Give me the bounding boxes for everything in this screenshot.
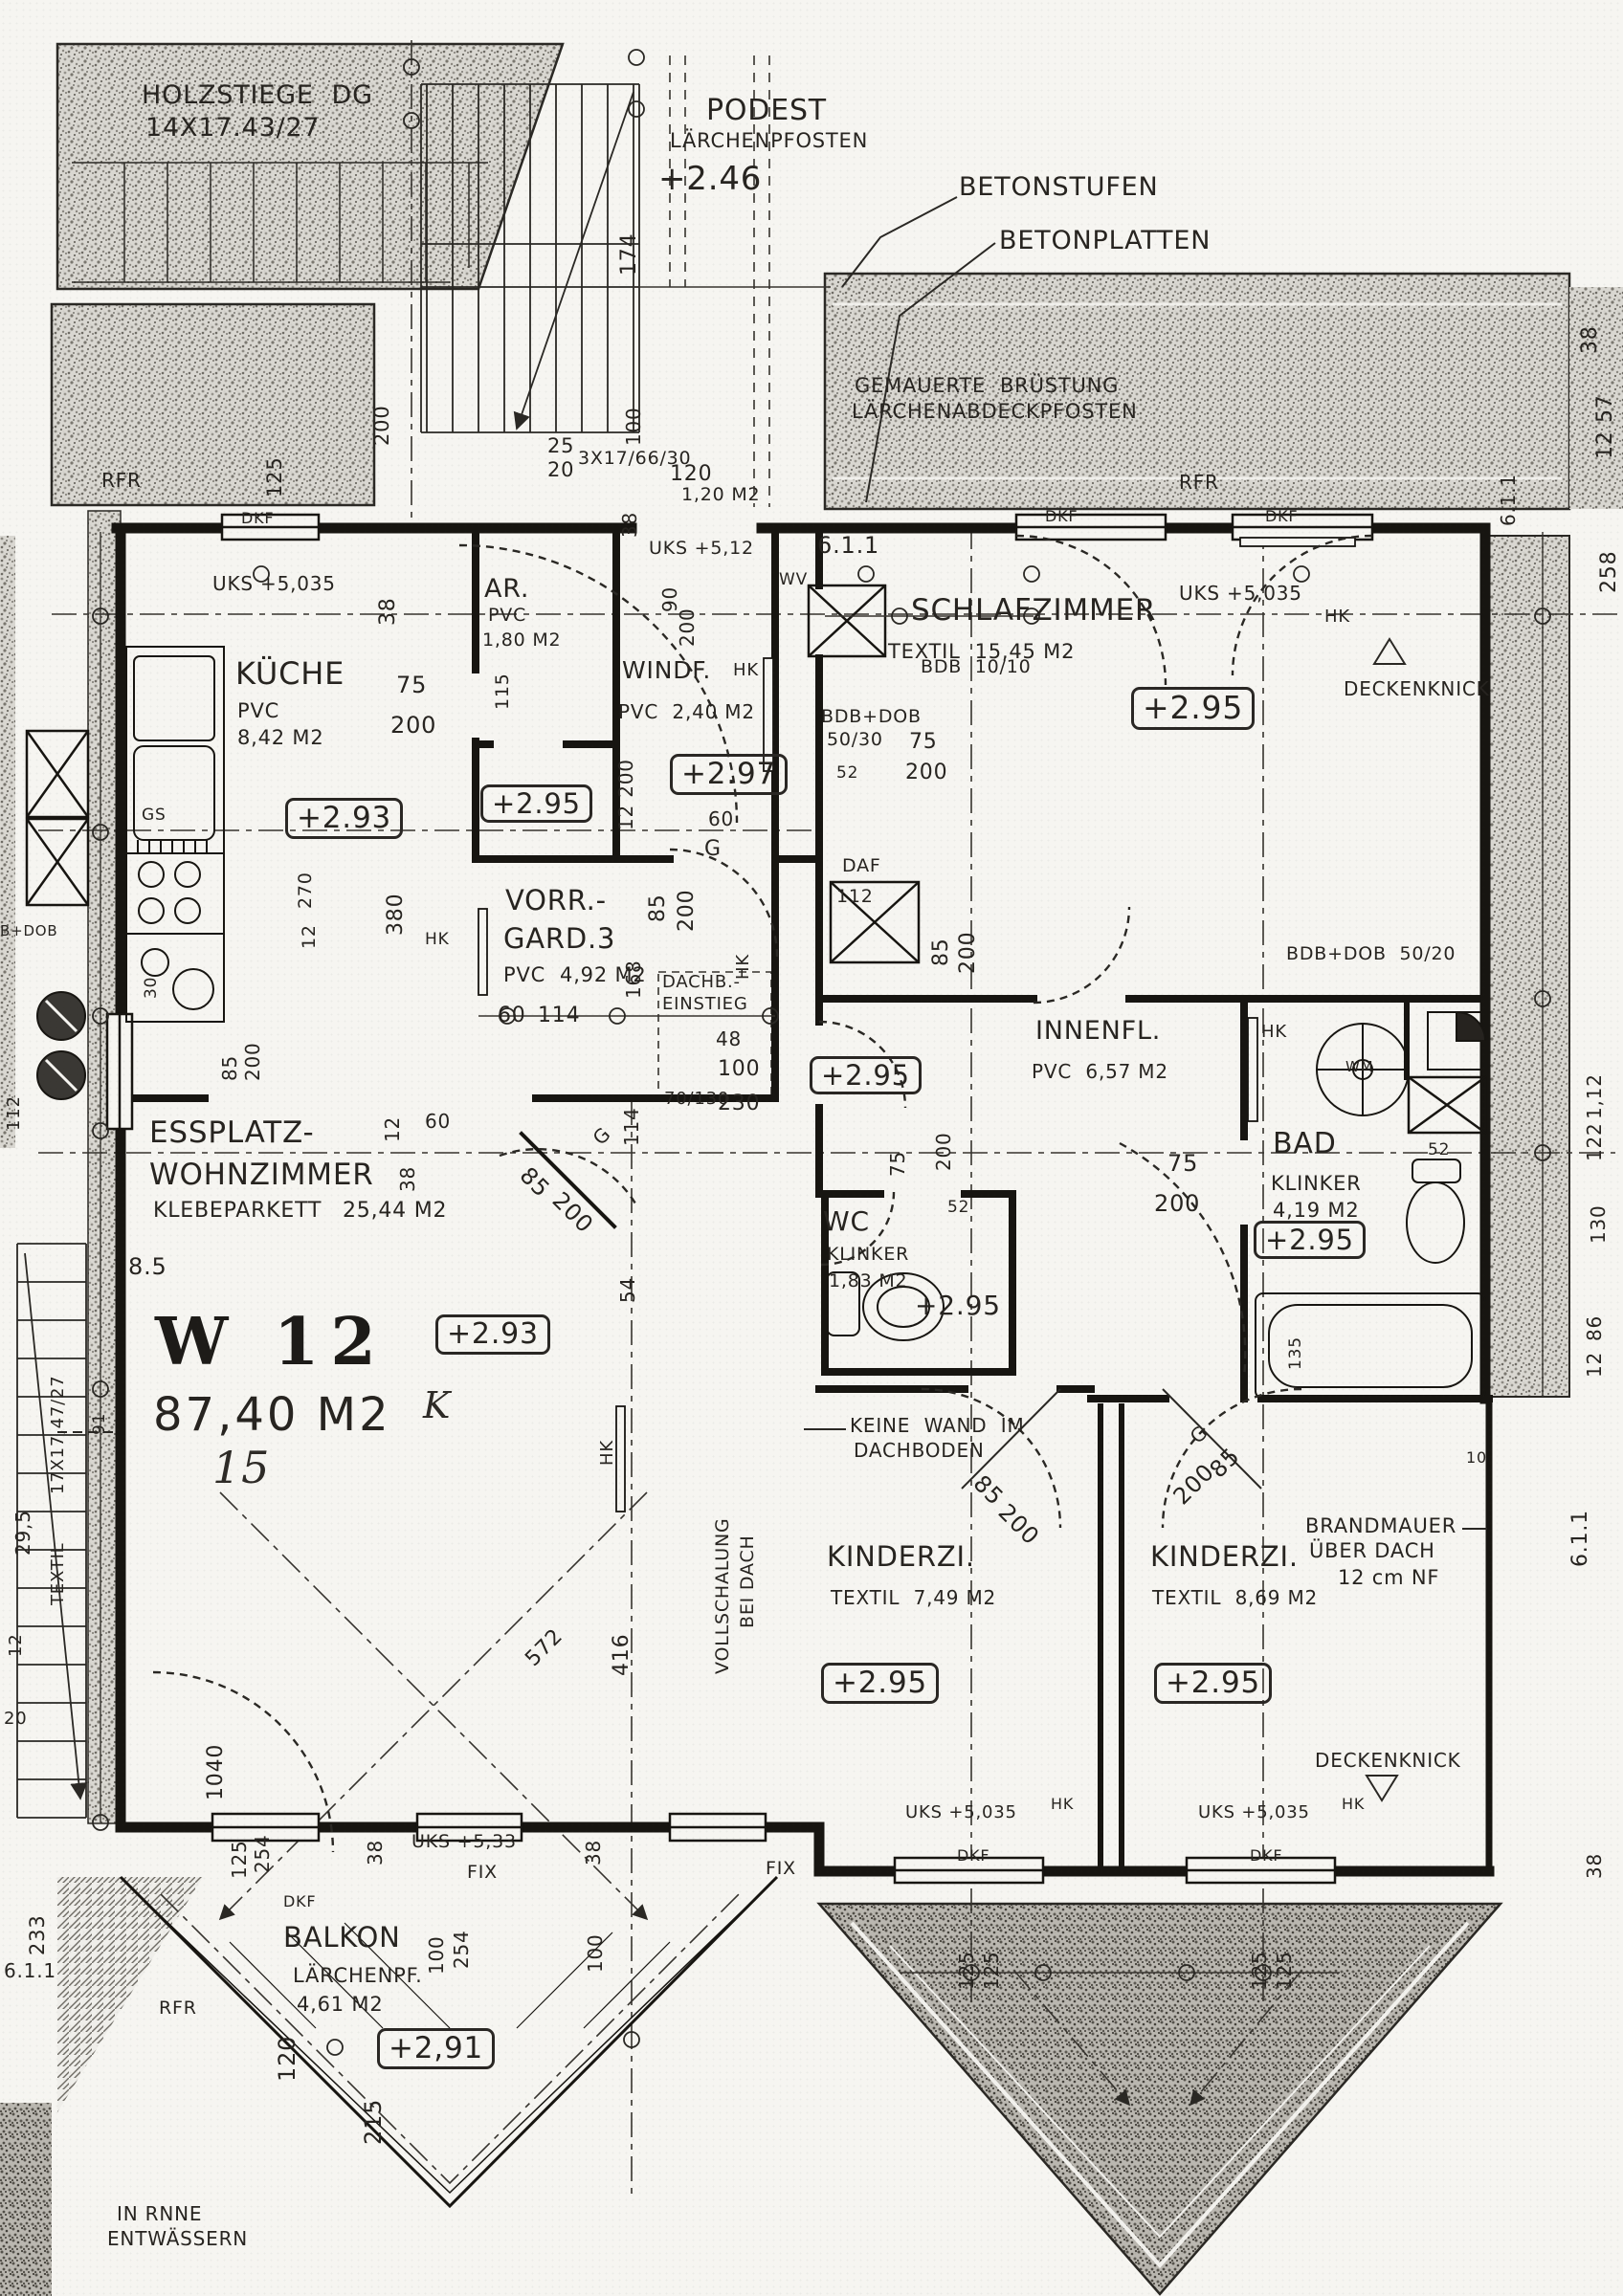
anno-r-130: 130 — [1589, 1204, 1609, 1244]
anno-door-g-200: 200 — [676, 890, 698, 932]
anno-innen-level: +2.95 — [810, 1056, 922, 1094]
anno-betonplatten: BETONPLATTEN — [999, 228, 1211, 254]
anno-dim-12-ess: 12 — [383, 1116, 403, 1142]
anno-dim-12-k: 12 — [300, 924, 320, 949]
anno-r-258: 258 — [1598, 551, 1620, 593]
anno-rinne-1: IN RNNE — [117, 2204, 202, 2224]
anno-kueche-floor: PVC — [237, 700, 279, 721]
anno-ar-floor: PVC — [488, 607, 526, 626]
anno-dim-114-e: 114 — [622, 1107, 642, 1146]
anno-keine-1: KEINE WAND IM — [850, 1416, 1025, 1436]
anno-r-112: 1,12 — [1585, 1073, 1605, 1119]
anno-podest-name: PODEST — [706, 96, 827, 126]
anno-dim-215: 215 — [362, 2099, 386, 2145]
anno-dim-25: 25 — [547, 435, 574, 456]
anno-podest-level: +2.46 — [658, 163, 762, 197]
anno-podest-material: LÄRCHENPFOSTEN — [670, 130, 868, 151]
expansion-joints — [658, 55, 771, 1098]
anno-dim-54: 54 — [618, 1277, 638, 1303]
anno-voll-1: VOLLSCHALUNG — [714, 1518, 733, 1674]
anno-wc-name: WC — [823, 1207, 870, 1235]
anno-dim-52-bad: 52 — [1428, 1142, 1450, 1159]
anno-dim-125-k1a: 125 — [957, 1951, 977, 1990]
anno-dim-380: 380 — [385, 894, 407, 936]
anno-schlaf-level: +2.95 — [1131, 687, 1255, 730]
anno-balkon-level: +2,91 — [377, 2028, 495, 2069]
anno-uks-512: UKS +5,12 — [649, 540, 754, 559]
anno-area-stair: 1,20 M2 — [681, 486, 760, 505]
radiators — [478, 538, 1355, 1512]
anno-rfr-balkon: RFR — [159, 1999, 197, 2019]
anno-wv: WV — [779, 572, 808, 589]
anno-dim-38-ess: 38 — [398, 1166, 418, 1192]
anno-uks-5035-k1: UKS +5,035 — [905, 1804, 1017, 1822]
anno-dim-125-b: 125 — [230, 1840, 250, 1879]
anno-rfr-left: RFR — [101, 471, 142, 491]
anno-holzstiege-1: HOLZSTIEGE DG — [142, 82, 373, 109]
anno-dim-38-b1: 38 — [366, 1840, 386, 1865]
anno-hk-bad: HK — [1261, 1024, 1287, 1042]
anno-dim-254-b1: 254 — [253, 1834, 273, 1873]
anno-hk-wohn: HK — [599, 1440, 617, 1466]
anno-door-kueche-75: 75 — [396, 673, 427, 697]
anno-vorr-name-2: GARD.3 — [503, 924, 615, 953]
anno-ess-area: 25,44 M2 — [343, 1200, 447, 1222]
anno-bruestung-2: LÄRCHENABDECKPFOSTEN — [852, 401, 1138, 422]
anno-unit-id: W 12 — [155, 1309, 388, 1377]
anno-dim-125-tl: 125 — [264, 457, 285, 497]
anno-bad-area: 4,19 M2 — [1273, 1200, 1360, 1221]
anno-dim-100-b2: 100 — [586, 1933, 606, 1973]
anno-r-122: 122 — [1585, 1122, 1605, 1161]
anno-holzstiege-2: 14X17.43/27 — [145, 115, 320, 142]
anno-r-38b: 38 — [1585, 1853, 1605, 1879]
anno-dim-254-b2: 254 — [452, 1930, 472, 1969]
anno-unit-area: 87,40 M2 — [153, 1391, 391, 1439]
anno-dim-52-wc: 52 — [947, 1200, 969, 1217]
anno-rfr-right: RFR — [1179, 473, 1219, 493]
anno-windf-level: +2.97 — [670, 754, 788, 795]
anno-hk-k1: HK — [1051, 1797, 1074, 1813]
anno-door-wc-200: 200 — [934, 1132, 954, 1171]
anno-dim-1040: 1040 — [205, 1744, 227, 1800]
anno-k-note: K — [423, 1387, 451, 1425]
anno-dim-85-left: 8.5 — [128, 1255, 167, 1279]
anno-door-g-85: 85 — [647, 894, 669, 922]
anno-axis-611-top: 6.1.1 — [817, 534, 879, 558]
anno-dim-112-l: 112 — [6, 1095, 24, 1131]
anno-fix-2: FIX — [766, 1860, 796, 1879]
anno-uks-kueche: UKS +5,035 — [212, 574, 336, 594]
anno-dim-20: 20 — [547, 459, 574, 480]
anno-door-bad-200: 200 — [1154, 1192, 1200, 1216]
anno-wm: WM — [1345, 1060, 1373, 1075]
anno-deckenknick-2: DECKENKNICK — [1315, 1751, 1461, 1771]
anno-dim-60-gard: 60 — [498, 1004, 526, 1027]
anno-keine-2: DACHBODEN — [854, 1441, 985, 1461]
anno-dim-230-corr: 230 — [718, 1093, 760, 1115]
anno-vorr-name-1: VORR.- — [505, 886, 607, 915]
anno-dim-200-tl: 200 — [371, 406, 392, 446]
anno-kz2-floor: TEXTIL 8,69 M2 — [1152, 1588, 1318, 1608]
anno-bad-level: +2.95 — [1254, 1221, 1366, 1259]
anno-dim-38-stair: 38 — [620, 512, 640, 538]
anno-dim-38-kueche: 38 — [377, 597, 399, 626]
anno-dim-125-k2b: 125 — [1275, 1951, 1295, 1990]
anno-dim-295: 29,5 — [13, 1510, 33, 1556]
anno-kz2-level: +2.95 — [1154, 1663, 1272, 1704]
anno-hk-k2: HK — [1342, 1797, 1365, 1813]
anno-ess-floor: KLEBEPARKETT — [153, 1200, 322, 1222]
anno-bdbdob-1a: BDB+DOB — [821, 708, 922, 727]
anno-balkon-area: 4,61 M2 — [297, 1994, 384, 2015]
anno-dim-100-stair: 100 — [624, 407, 644, 446]
anno-dim-91: 91 — [92, 1413, 109, 1435]
anno-r-38a: 38 — [1579, 325, 1601, 354]
anno-rinne-2: ENTWÄSSERN — [107, 2229, 248, 2249]
anno-bad-name: BAD — [1273, 1129, 1337, 1159]
anno-daf-112: 112 — [836, 888, 874, 907]
anno-unit-hand: 15 — [212, 1445, 270, 1490]
anno-dkf-5: DKF — [957, 1848, 989, 1865]
anno-wc-area: 1,83 M2 — [829, 1272, 907, 1291]
anno-windf-floor: PVC 2,40 M2 — [618, 702, 755, 722]
anno-hk-gard: HK — [425, 932, 450, 949]
anno-wohn-level: +2.93 — [435, 1314, 550, 1355]
anno-schlaf-name: SCHLAFZIMMER — [911, 595, 1156, 627]
anno-dim-125-k2a: 125 — [1250, 1951, 1270, 1990]
anno-balkon-name: BALKON — [283, 1923, 401, 1952]
anno-ess-name-1: ESSPLATZ- — [149, 1117, 314, 1149]
anno-door-c-200: 200 — [957, 932, 979, 974]
anno-dim-52-schlaf: 52 — [836, 765, 858, 783]
anno-g-door-1: G — [704, 838, 722, 860]
anno-dim-12-l: 12 — [8, 1633, 26, 1657]
anno-wc-floor: KLINKER — [827, 1246, 909, 1265]
anno-dim-125-k1b: 125 — [982, 1951, 1002, 1990]
anno-dkf-2: DKF — [1045, 509, 1078, 525]
anno-bad-floor: KLINKER — [1271, 1173, 1362, 1194]
anno-innen-floor: PVC 6,57 M2 — [1032, 1062, 1168, 1082]
anno-stair-l-2: 17X17,47/27 — [50, 1375, 68, 1494]
anno-hk-windf: HK — [733, 662, 759, 680]
anno-deckenknick-1: DECKENKNICK — [1344, 679, 1490, 699]
anno-ar-name: AR. — [484, 576, 529, 603]
anno-axis-611-bl: 6.1.1 — [4, 1961, 56, 1981]
anno-dim-114-gard: 114 — [538, 1004, 580, 1027]
anno-door-wc-75: 75 — [888, 1151, 908, 1177]
anno-door-schlaf-75: 75 — [909, 731, 938, 753]
anno-kueche-area: 8,42 M2 — [237, 727, 324, 748]
anno-r-12b: 12 — [1585, 1352, 1605, 1378]
anno-balkon-floor: LÄRCHENPF. — [293, 1965, 423, 1986]
anno-brand-3: 12 cm NF — [1338, 1567, 1439, 1588]
anno-uks-schlaf: UKS +5,035 — [1179, 584, 1302, 604]
anno-r-611b: 6.1.1 — [1499, 474, 1519, 526]
anno-dim-200-windf: 200 — [678, 607, 698, 647]
anno-dkf-1: DKF — [241, 511, 274, 527]
anno-bruestung-1: GEMAUERTE BRÜSTUNG — [855, 375, 1119, 396]
anno-dim-168: 168 — [624, 960, 644, 999]
anno-dim-12-200: 12 200 — [616, 759, 636, 830]
anno-r-86: 86 — [1585, 1315, 1605, 1341]
anno-dim-174: 174 — [618, 233, 640, 276]
anno-dim-60-windf: 60 — [708, 809, 734, 829]
anno-r-611c: 6.1.1 — [1569, 1510, 1591, 1567]
anno-r-12a: 12 — [1594, 430, 1616, 459]
anno-fix-1: FIX — [467, 1864, 498, 1883]
anno-win-200: 200 — [243, 1042, 263, 1081]
anno-dachb-2: EINSTIEG — [662, 996, 748, 1014]
anno-kueche-name: KÜCHE — [235, 658, 345, 691]
kitchen-fixtures — [126, 647, 224, 1022]
anno-dim-120-stair: 120 — [670, 463, 712, 485]
anno-r-57: 57 — [1594, 394, 1616, 423]
anno-dim-60-ess: 60 — [425, 1112, 451, 1132]
anno-door-c-85: 85 — [930, 938, 952, 966]
anno-win-85: 85 — [220, 1055, 240, 1081]
anno-kz2-name: KINDERZI. — [1150, 1542, 1299, 1571]
anno-brand-2: ÜBER DACH — [1309, 1540, 1435, 1561]
anno-dim-115: 115 — [494, 673, 513, 710]
anno-door-bad-75: 75 — [1167, 1152, 1198, 1176]
anno-voll-2: BEI DACH — [739, 1534, 758, 1628]
anno-dachb-1: DACHB.- — [662, 974, 741, 992]
anno-kz1-level: +2.95 — [821, 1663, 939, 1704]
anno-betonstufen: BETONSTUFEN — [959, 174, 1159, 201]
anno-uks-5035-k2: UKS +5,035 — [1198, 1804, 1310, 1822]
anno-dim-100-corr: 100 — [718, 1058, 760, 1080]
anno-kz1-floor: TEXTIL 7,49 M2 — [831, 1588, 996, 1608]
anno-uks-533: UKS +5,33 — [411, 1833, 517, 1852]
anno-windf-name: WINDF. — [622, 658, 711, 683]
anno-ar-area: 1,80 M2 — [482, 631, 561, 651]
anno-door-schlaf-200: 200 — [905, 762, 947, 784]
deckenknick-symbols — [1367, 639, 1405, 1800]
anno-bdbdob-left: B+DOB — [0, 924, 58, 939]
anno-dim-270: 270 — [297, 872, 316, 909]
anno-dim-120-b: 120 — [276, 2036, 300, 2082]
anno-dim-10: 10 — [1466, 1450, 1487, 1467]
anno-gs: GS — [142, 807, 167, 825]
anno-brand-1: BRANDMAUER — [1305, 1515, 1456, 1536]
anno-dim-233: 233 — [27, 1915, 48, 1955]
anno-kueche-level: +2.93 — [285, 798, 403, 839]
anno-innen-name: INNENFL. — [1035, 1018, 1161, 1045]
anno-ess-name-2: WOHNZIMMER — [149, 1159, 374, 1191]
anno-dkf-3: DKF — [1265, 509, 1298, 525]
anno-bdb-1010: BDB 10/10 — [921, 658, 1032, 677]
neighbour-fixtures — [37, 992, 85, 1099]
anno-bdbdob-50-20: BDB+DOB 50/20 — [1286, 945, 1456, 964]
anno-wc-level: +2.95 — [915, 1291, 1001, 1319]
anno-dim-20-l: 20 — [4, 1711, 28, 1729]
anno-door-kueche-200: 200 — [390, 714, 436, 738]
anno-dim-30-l: 30 — [144, 977, 161, 999]
anno-dim-48: 48 — [716, 1029, 742, 1049]
anno-dkf-4: DKF — [283, 1894, 316, 1910]
anno-hk-schlaf: HK — [1324, 608, 1350, 627]
anno-dim-135: 135 — [1288, 1336, 1305, 1370]
anno-kz1-name: KINDERZI. — [827, 1542, 975, 1571]
floorplan-sheet: HOLZSTIEGE DG14X17.43/27PODESTLÄRCHENPFO… — [0, 0, 1623, 2296]
anno-stair-l-1: TEXTIL — [50, 1542, 68, 1605]
anno-dim-416: 416 — [611, 1634, 633, 1676]
anno-dkf-6: DKF — [1250, 1848, 1282, 1865]
anno-dim-38-b2: 38 — [584, 1840, 604, 1865]
anno-dim-100-b1: 100 — [427, 1935, 447, 1975]
anno-bdbdob-1b: 50/30 — [827, 731, 883, 750]
anno-ar-level: +2.95 — [480, 784, 592, 823]
anno-daf: DAF — [842, 857, 881, 876]
